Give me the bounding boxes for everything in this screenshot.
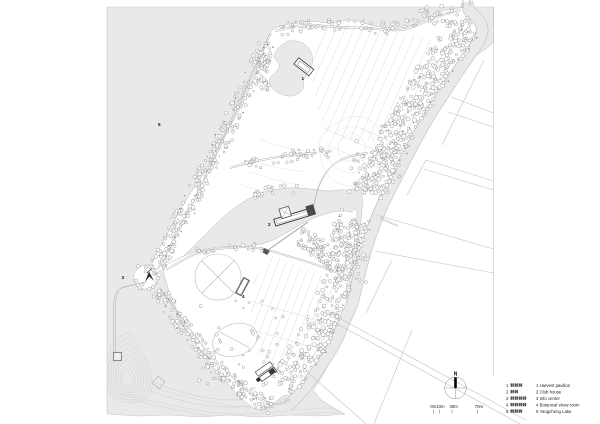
svg-text:1: 1 <box>302 76 305 81</box>
svg-text:1 Harvest pavilion: 1 Harvest pavilion <box>536 383 571 388</box>
svg-text:70m: 70m <box>475 404 484 409</box>
svg-text:0m10m: 0m10m <box>430 404 445 409</box>
svg-text:5 Yangcheng Lake: 5 Yangcheng Lake <box>536 409 572 414</box>
svg-text:N: N <box>454 372 458 378</box>
svg-text:3 Info center: 3 Info center <box>536 396 560 401</box>
svg-text:2 Club house: 2 Club house <box>536 389 562 394</box>
svg-text:30m: 30m <box>450 404 459 409</box>
svg-text:4: 4 <box>242 294 245 299</box>
svg-text:4 Botanical show room: 4 Botanical show room <box>536 402 580 407</box>
svg-text:3: 3 <box>122 275 125 280</box>
svg-text:5: 5 <box>158 122 161 127</box>
svg-text:2: 2 <box>268 222 271 227</box>
